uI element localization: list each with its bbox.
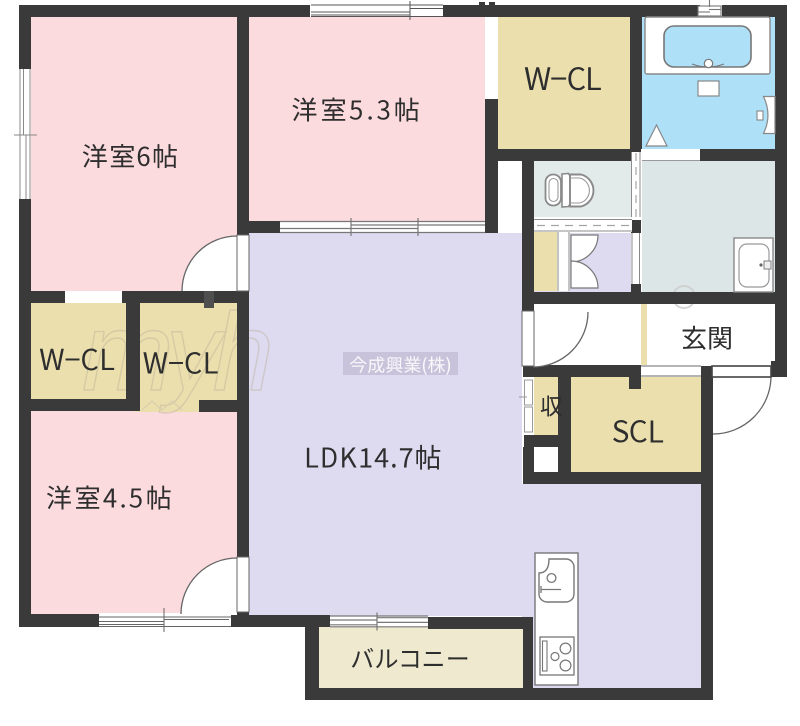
svg-text:洋室5.3帖: 洋室5.3帖	[292, 90, 423, 127]
svg-text:収: 収	[540, 388, 563, 422]
svg-text:W−CL: W−CL	[524, 54, 601, 99]
svg-text:玄関: 玄関	[681, 318, 733, 355]
svg-text:洋室6帖: 洋室6帖	[82, 137, 179, 174]
svg-text:今成興業(株): 今成興業(株)	[349, 352, 451, 378]
svg-text:W−CL: W−CL	[39, 337, 115, 379]
svg-text:洋室4.5帖: 洋室4.5帖	[46, 478, 174, 515]
svg-text:LDK14.7帖: LDK14.7帖	[304, 436, 442, 475]
svg-text:バルコニー: バルコニー	[350, 639, 470, 674]
svg-text:SCL: SCL	[612, 408, 664, 452]
svg-text:W−CL: W−CL	[143, 340, 219, 382]
